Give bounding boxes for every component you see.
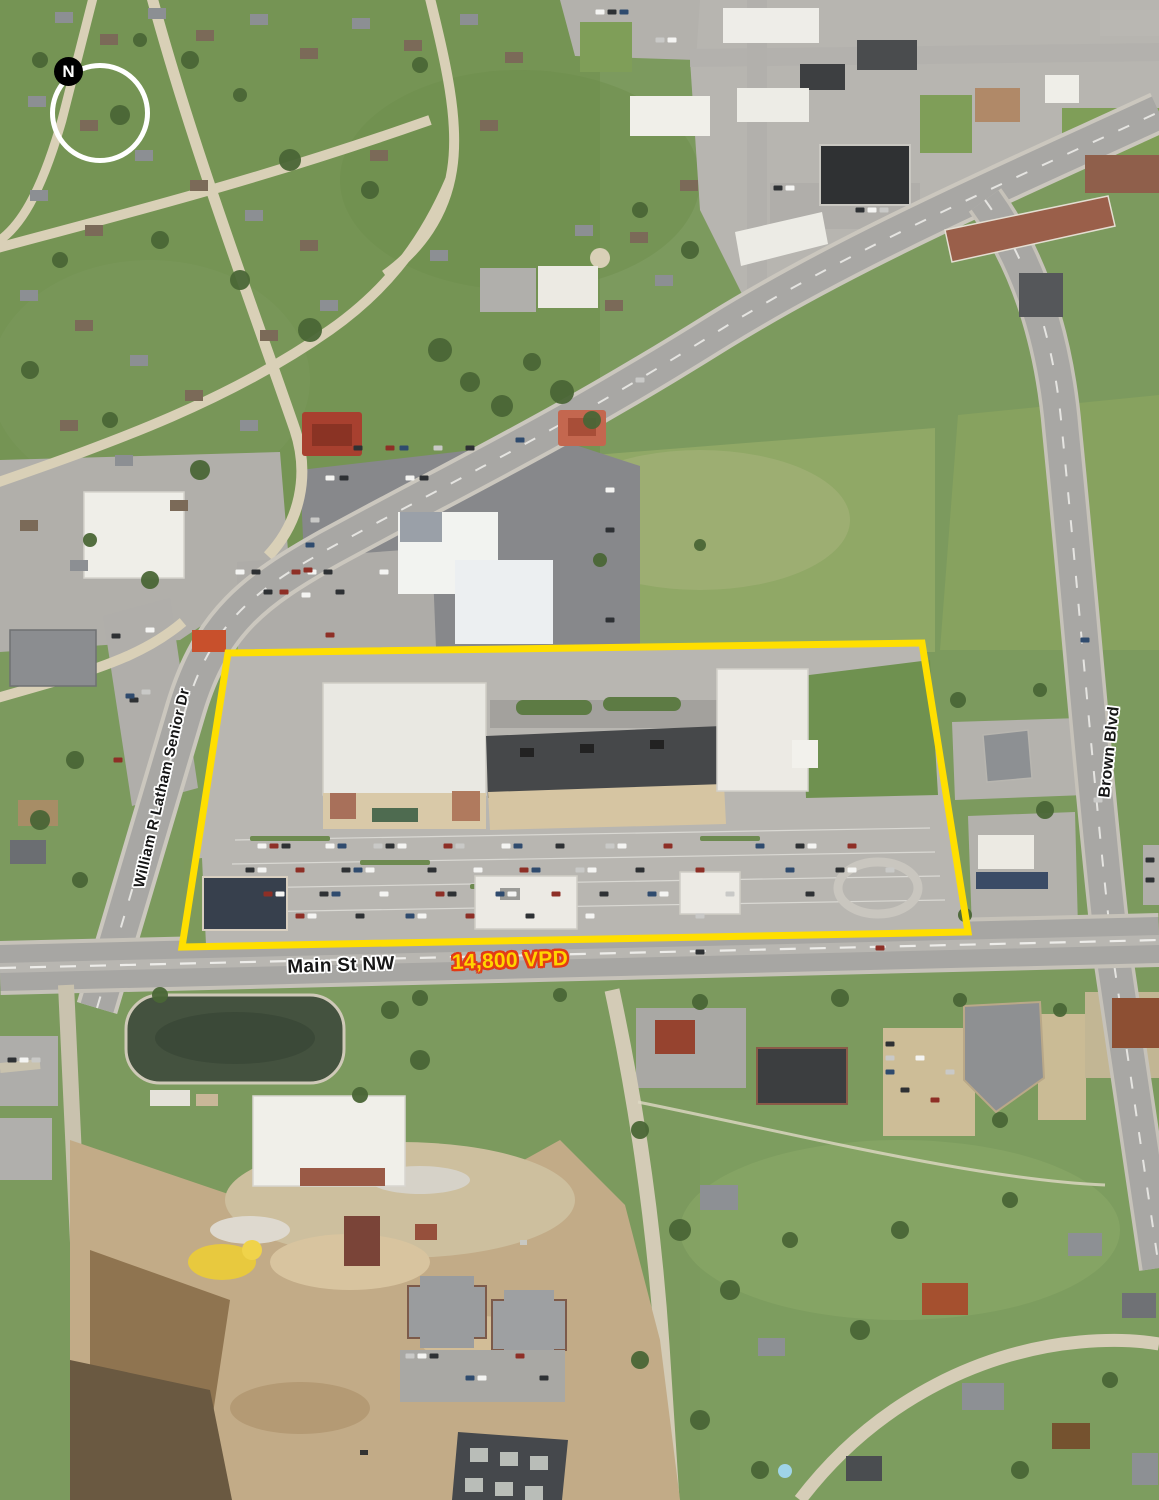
street-label-main-st: Main St NW [287, 953, 395, 979]
compass-north-label: N [62, 62, 74, 82]
aerial-site-plan: N William R Latham Senior Dr Main St NW … [0, 0, 1159, 1500]
traffic-count-label: 14,800 VPD [451, 947, 568, 975]
compass-north-badge: N [54, 57, 83, 86]
shopping-center-parcel [182, 643, 968, 947]
